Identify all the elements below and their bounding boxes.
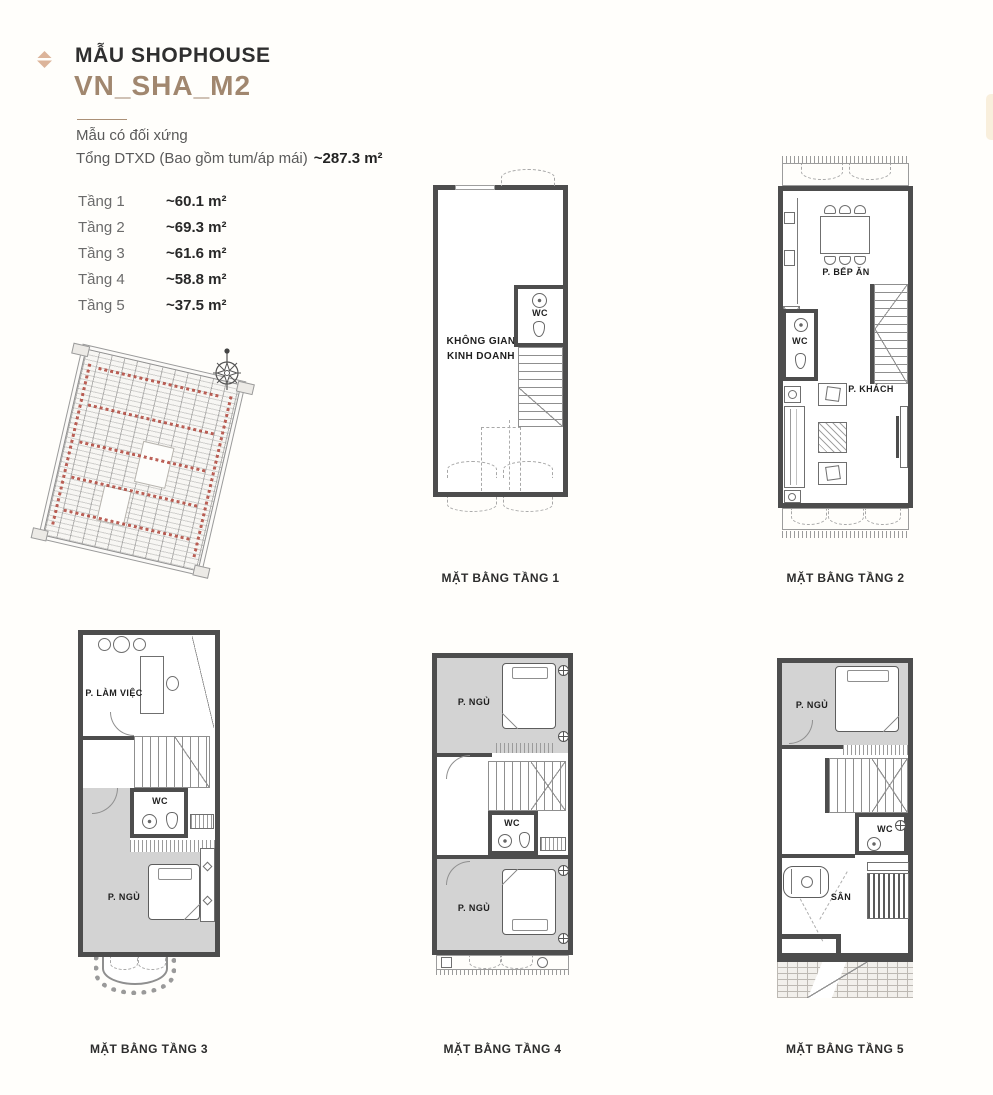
caption-floor-2: MẶT BẰNG TẦNG 2 xyxy=(758,571,933,585)
desk-icon xyxy=(140,656,164,714)
stairs xyxy=(488,761,566,811)
wall xyxy=(836,934,841,958)
toilet-icon xyxy=(795,353,806,369)
lamp-icon xyxy=(788,493,796,501)
side-table-icon xyxy=(784,490,801,503)
wardrobe-icon xyxy=(200,848,215,922)
room-label-bedroom: P. NGỦ xyxy=(444,902,504,915)
kitchen-counter xyxy=(783,198,798,304)
door-swing xyxy=(447,497,497,512)
door-swing xyxy=(469,956,501,969)
sofa-icon xyxy=(784,406,805,488)
floor-area-row: Tầng 5~37.5 m² xyxy=(78,297,226,323)
pillow-icon xyxy=(158,868,192,880)
wc-room: WC xyxy=(488,811,538,855)
room-label-terrace: SÂN xyxy=(821,891,861,904)
page-edge-accent xyxy=(986,94,993,140)
column-marker-icon xyxy=(558,731,569,742)
blanket-fold xyxy=(883,716,899,732)
floor-area: ~61.6 m² xyxy=(166,245,226,262)
room-label-bedroom: P. NGỦ xyxy=(787,699,837,712)
balcony xyxy=(782,163,909,186)
floor-label: Tầng 1 xyxy=(78,193,166,210)
blanket-fold xyxy=(184,904,200,920)
sink-icon xyxy=(794,318,808,332)
balcony-railing xyxy=(782,531,909,538)
wall xyxy=(779,934,841,939)
chair-icon xyxy=(854,205,866,214)
pillow-icon xyxy=(847,670,889,682)
stair-run-line xyxy=(875,285,907,329)
kitchen-sink-icon xyxy=(784,212,795,224)
room-label-business: KINH DOANH xyxy=(439,350,523,364)
floorplan-1: KHÔNG GIAN KINH DOANH WC xyxy=(433,185,568,497)
wall xyxy=(779,745,843,749)
caption-floor-3: MẶT BẰNG TẦNG 3 xyxy=(58,1042,240,1056)
round-chair-icon xyxy=(98,638,111,651)
wall xyxy=(514,285,563,289)
floorplan-2: P. BẾP ĂN WC P. KHÁCH xyxy=(778,156,913,538)
floor-area-row: Tầng 1~60.1 m² xyxy=(78,193,226,219)
total-area-label: Tổng DTXD (Bao gồm tum/áp mái) xyxy=(76,150,308,167)
coffee-table-icon xyxy=(818,422,847,453)
stairs xyxy=(134,736,210,788)
floor-area: ~60.1 m² xyxy=(166,193,226,210)
round-chair-icon xyxy=(133,638,146,651)
room-label-office: P. LÀM VIỆC xyxy=(82,687,146,700)
louver-unit-icon xyxy=(867,873,909,919)
sink-icon xyxy=(867,837,881,851)
planter-icon xyxy=(441,957,452,968)
stairs xyxy=(874,284,908,384)
cushion-icon xyxy=(825,465,841,481)
subtitle: Mẫu có đối xứng xyxy=(76,127,188,144)
caption-floor-1: MẶT BẰNG TẦNG 1 xyxy=(413,571,588,585)
stairs xyxy=(518,347,563,427)
pillow-icon xyxy=(512,667,547,679)
door-swing xyxy=(791,509,827,525)
toilet-icon xyxy=(166,812,178,829)
shelf-icon xyxy=(190,814,214,829)
bed-icon xyxy=(502,663,556,729)
door-swing xyxy=(801,164,843,180)
bed-icon xyxy=(502,869,556,935)
blanket-fold xyxy=(502,713,518,729)
total-area-row: Tổng DTXD (Bao gồm tum/áp mái)~287.3 m² xyxy=(76,150,383,167)
brochure-page: MẪU SHOPHOUSE VN_SHA_M2 Mẫu có đối xứng … xyxy=(0,0,993,1095)
dashed-centerline xyxy=(509,420,510,490)
stair-run-line xyxy=(175,737,209,787)
door-swing xyxy=(503,461,553,478)
door-swing xyxy=(447,461,497,478)
door-swing xyxy=(828,509,864,525)
sink-icon xyxy=(532,293,547,308)
wall xyxy=(779,854,855,858)
window xyxy=(455,185,495,190)
armchair-icon xyxy=(818,383,847,406)
toilet-icon xyxy=(519,832,530,848)
door-swing xyxy=(110,957,138,970)
stair-run-line xyxy=(519,388,562,426)
floor-label: Tầng 5 xyxy=(78,297,166,314)
balcony-railing xyxy=(782,156,909,163)
title-divider xyxy=(77,119,127,120)
cooktop-icon xyxy=(784,250,795,266)
sink-icon xyxy=(142,814,157,829)
floor-area-row: Tầng 3~61.6 m² xyxy=(78,245,226,271)
door-swing xyxy=(865,509,901,525)
road-stub xyxy=(31,527,49,541)
shower-drain-icon xyxy=(895,820,906,831)
wall xyxy=(514,285,518,347)
dashed-zone xyxy=(481,427,521,491)
balcony-railing xyxy=(436,970,569,975)
cushion-icon xyxy=(825,386,841,402)
round-table-icon xyxy=(113,636,130,653)
room-label-wc: WC xyxy=(494,817,530,830)
door-swing xyxy=(501,956,533,969)
lamp-icon xyxy=(788,390,797,399)
column-marker-icon xyxy=(558,865,569,876)
dining-table-icon xyxy=(820,216,870,254)
blanket-fold xyxy=(502,869,518,885)
wc-room: WC xyxy=(782,309,818,381)
wall xyxy=(80,736,134,740)
door-swing xyxy=(138,957,166,970)
balcony xyxy=(436,955,569,970)
tank-cap-icon xyxy=(801,876,813,888)
door-swing xyxy=(849,164,891,180)
column-marker-icon xyxy=(558,933,569,944)
room-label-bedroom: P. NGỦ xyxy=(444,696,504,709)
pillow-icon xyxy=(512,919,547,931)
stair-run-line xyxy=(531,762,565,810)
wc-room: WC xyxy=(130,788,188,838)
room-label-wc: WC xyxy=(525,307,555,320)
sofa-seam xyxy=(796,409,797,485)
floor-area-row: Tầng 4~58.8 m² xyxy=(78,271,226,297)
bench-icon xyxy=(867,862,909,871)
side-table-icon xyxy=(784,386,801,403)
floor-area-list: Tầng 1~60.1 m² Tầng 2~69.3 m² Tầng 3~61.… xyxy=(78,193,226,323)
floor-area: ~37.5 m² xyxy=(166,297,226,314)
room-label-wc: WC xyxy=(786,335,814,348)
model-title: VN_SHA_M2 xyxy=(74,70,251,102)
site-plan xyxy=(38,342,268,582)
tank-rib xyxy=(791,869,792,894)
chair-icon xyxy=(839,205,851,214)
balcony xyxy=(782,508,909,530)
room-label-bedroom: P. NGỦ xyxy=(96,891,152,904)
floor-area: ~69.3 m² xyxy=(166,219,226,236)
lot-label-strip xyxy=(98,367,221,398)
railing-hatch xyxy=(843,745,908,755)
floor-area-row: Tầng 2~69.3 m² xyxy=(78,219,226,245)
railing-hatch xyxy=(496,743,556,753)
lower-roof-apron xyxy=(777,958,913,998)
compass-rose-icon xyxy=(206,346,248,396)
roof-ridge-line xyxy=(807,962,867,998)
stair-run-line xyxy=(875,329,907,383)
armchair-icon xyxy=(818,462,847,485)
lot-label-strip xyxy=(193,395,233,557)
column-marker-icon xyxy=(558,665,569,676)
planter-icon xyxy=(537,957,548,968)
page-kicker: MẪU SHOPHOUSE xyxy=(75,44,271,68)
void-line xyxy=(192,636,214,728)
tv-icon xyxy=(896,416,899,458)
caption-floor-4: MẶT BẰNG TẦNG 4 xyxy=(412,1042,593,1056)
bed-icon xyxy=(148,864,200,920)
tv-cabinet-icon xyxy=(900,406,908,468)
door-swing xyxy=(501,169,555,186)
floor-label: Tầng 4 xyxy=(78,271,166,288)
knob-icon xyxy=(203,862,213,872)
stairs xyxy=(829,758,908,813)
floorplan-4: P. NGỦ WC P. NGỦ xyxy=(432,653,573,975)
chair-icon xyxy=(824,205,836,214)
road-stub xyxy=(192,565,210,579)
caption-floor-5: MẶT BẰNG TẦNG 5 xyxy=(757,1042,933,1056)
open-space xyxy=(134,441,175,489)
floorplan-5: P. NGỦ WC SÂN xyxy=(777,658,913,1000)
knob-icon xyxy=(203,896,213,906)
bed-icon xyxy=(835,666,899,732)
lot-label-strip xyxy=(63,509,190,541)
room-label-wc: WC xyxy=(142,795,178,808)
wc-room: WC xyxy=(855,813,908,855)
lot-label-strip xyxy=(88,403,215,435)
floor-area: ~58.8 m² xyxy=(166,271,226,288)
room-label-business: KHÔNG GIAN xyxy=(439,335,523,349)
sink-icon xyxy=(498,834,512,848)
shelf-icon xyxy=(540,837,566,851)
door-swing xyxy=(503,497,553,512)
desk-chair-icon xyxy=(166,676,179,691)
diamond-icon xyxy=(36,51,53,68)
room-label-kitchen: P. BẾP ĂN xyxy=(808,266,884,279)
stair-run-line xyxy=(872,759,907,812)
total-area-value: ~287.3 m² xyxy=(314,150,383,167)
floor-label: Tầng 3 xyxy=(78,245,166,262)
sofa-seam xyxy=(790,409,791,485)
road-stub xyxy=(71,343,90,358)
floorplan-3: P. LÀM VIỆC WC P. NGỦ xyxy=(78,630,220,990)
floor-label: Tầng 2 xyxy=(78,219,166,236)
